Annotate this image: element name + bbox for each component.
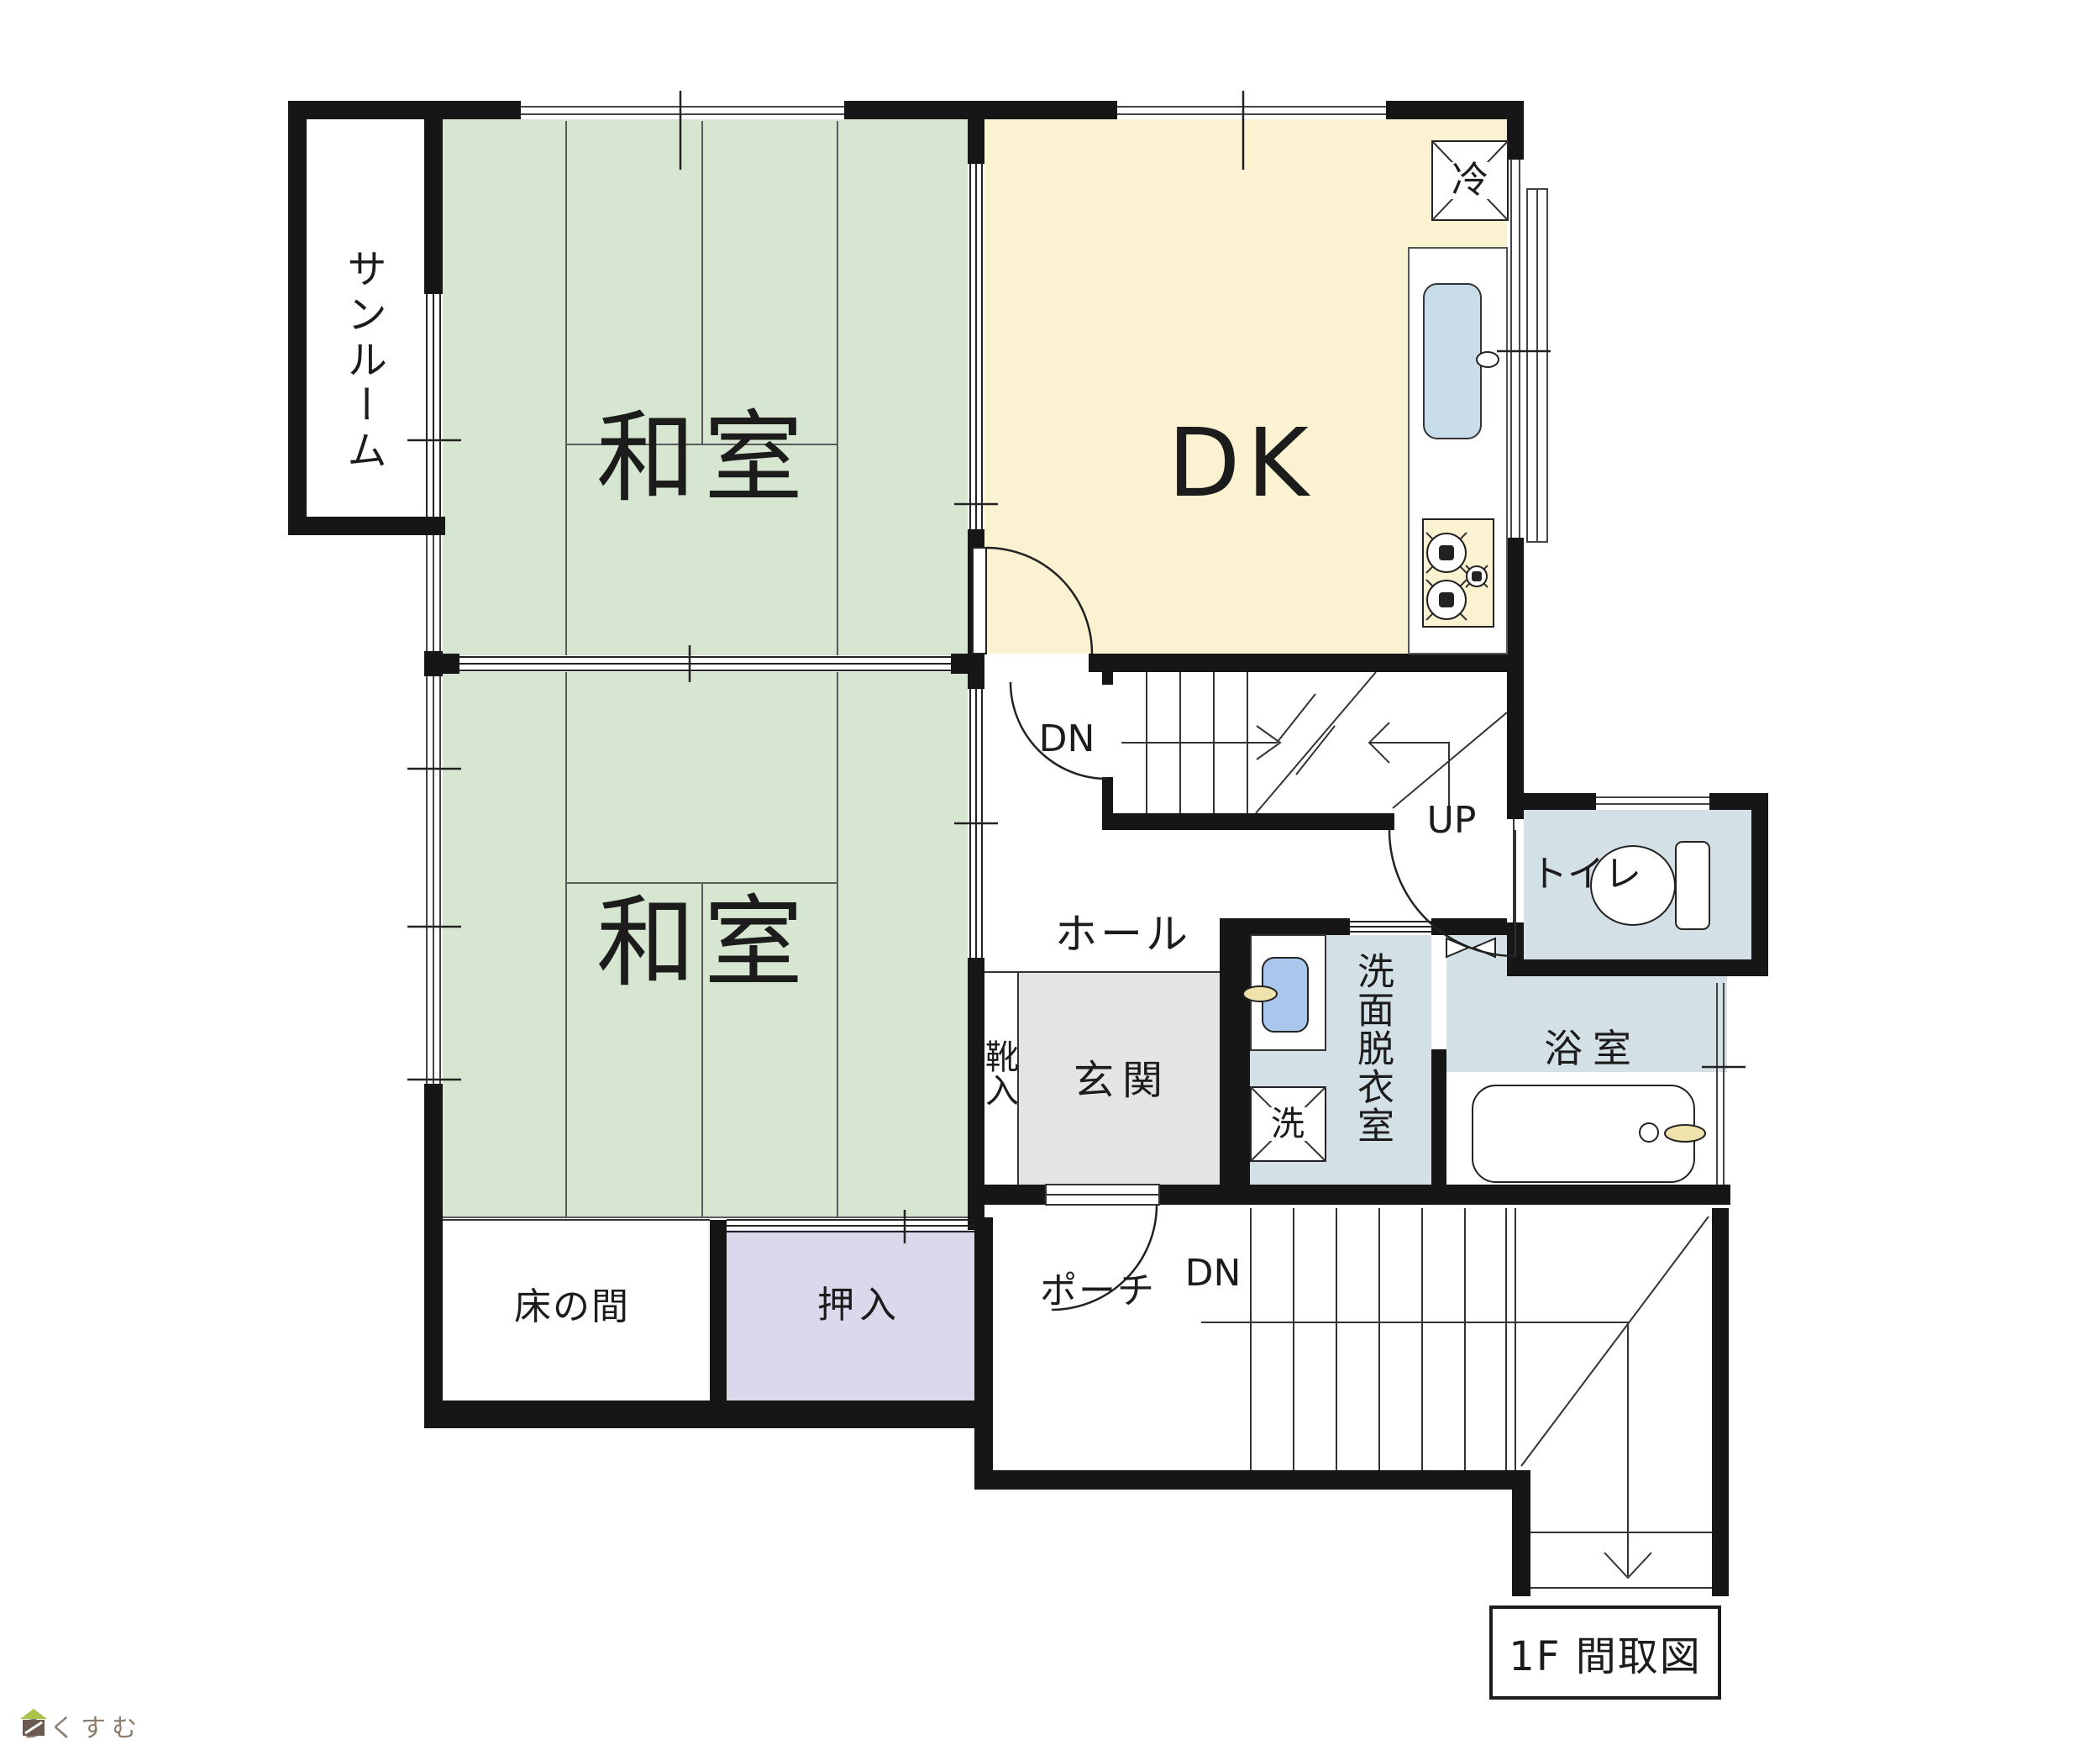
- plan-caption-box: 1F 間取図: [1489, 1605, 1721, 1700]
- exterior-stairs: [1201, 1208, 1712, 1588]
- label-oshiire: 押入: [817, 1287, 901, 1324]
- label-bath: 浴室: [1544, 1029, 1641, 1068]
- label-dk: DK: [1168, 417, 1315, 511]
- kitchen-faucet-icon: [1477, 352, 1499, 367]
- dk-door-leaf: [973, 548, 986, 654]
- label-washroom: 洗面脱衣室: [1353, 952, 1390, 1145]
- label-washer: 洗: [1269, 1107, 1306, 1141]
- kitchen-sink-icon: [1424, 284, 1481, 439]
- label-stairs-dn: DN: [1039, 721, 1095, 758]
- label-washitsu-upper: 和室: [596, 408, 811, 507]
- label-hall: ホール: [1055, 913, 1191, 955]
- label-toilet: トイレ: [1530, 856, 1641, 893]
- label-shoe-cabinet: 靴入: [982, 1039, 1016, 1106]
- plan-caption-text: 1F 間取図: [1509, 1623, 1701, 1682]
- floorplan-page: サンルーム 和室 和室 DK 冷 ホール DN UP トイレ 浴室 洗面脱衣室 …: [0, 0, 2100, 1750]
- label-porch-dn: DN: [1185, 1255, 1242, 1292]
- label-stairs-up: UP: [1427, 802, 1477, 839]
- bathtub-icon: [1473, 1085, 1705, 1182]
- stove-icon: [1423, 519, 1494, 627]
- label-genkan: 玄関: [1074, 1060, 1171, 1101]
- watermark: らくすむ: [18, 1707, 143, 1744]
- interior-stairs: [1121, 672, 1507, 813]
- label-tokonoma: 床の間: [514, 1289, 630, 1326]
- house-icon: [18, 1707, 49, 1737]
- label-sunroom: サンルーム: [343, 248, 383, 475]
- floorplan-svg: [0, 0, 2100, 1750]
- room-fills: [443, 119, 1751, 1401]
- vanity-sink-icon: [1243, 935, 1326, 1050]
- room-washitsu-upper: [443, 119, 968, 655]
- label-fridge: 冷: [1450, 162, 1490, 199]
- label-porch: ポーチ: [1040, 1273, 1156, 1310]
- label-washitsu-lower: 和室: [596, 893, 811, 992]
